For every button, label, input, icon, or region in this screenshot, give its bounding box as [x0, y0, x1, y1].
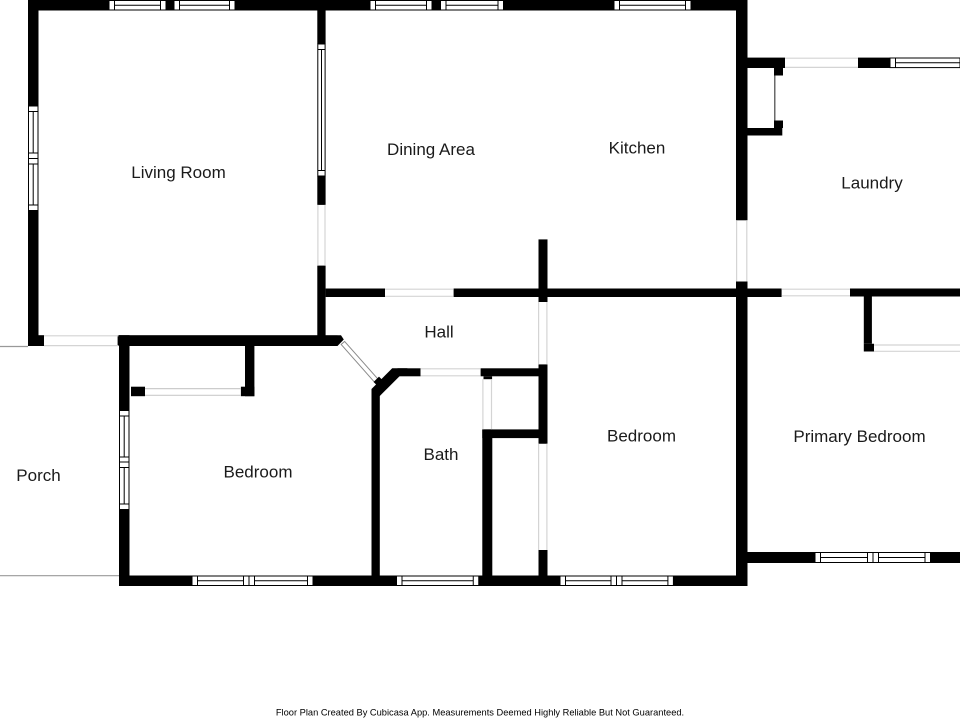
svg-text:Living Room: Living Room [131, 163, 226, 182]
svg-text:Bath: Bath [424, 445, 459, 464]
svg-text:Dining Area: Dining Area [387, 140, 475, 159]
svg-text:Laundry: Laundry [841, 174, 903, 193]
svg-text:Primary Bedroom: Primary Bedroom [793, 427, 925, 446]
svg-text:Porch: Porch [16, 466, 60, 485]
svg-text:Hall: Hall [424, 323, 453, 342]
svg-text:Kitchen: Kitchen [609, 139, 666, 158]
svg-text:Bedroom: Bedroom [607, 427, 676, 446]
svg-text:Bedroom: Bedroom [224, 463, 293, 482]
svg-text:Floor Plan Created By Cubicasa: Floor Plan Created By Cubicasa App. Meas… [276, 708, 684, 718]
